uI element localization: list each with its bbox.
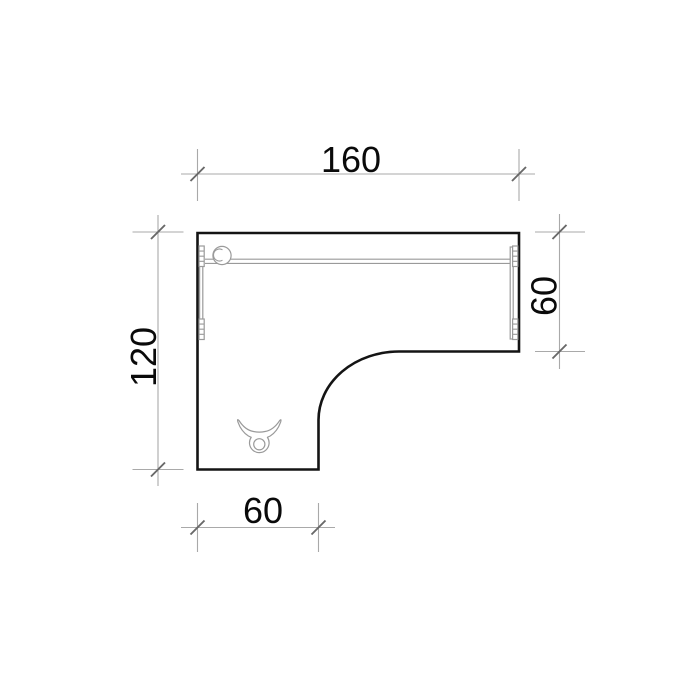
dimension-right-label: 60 (524, 276, 565, 316)
dimension-left-label: 120 (123, 327, 164, 387)
cable-grommet-icon (213, 246, 231, 264)
dimension-top: 160 (181, 139, 535, 201)
desk-plan-svg: 160 120 60 60 (0, 0, 700, 700)
dimension-bottom-label: 60 (243, 490, 283, 531)
dimension-bottom: 60 (181, 490, 335, 552)
dimension-top-label: 160 (321, 139, 381, 180)
dimension-right: 60 (524, 214, 586, 369)
desk-plan-drawing: 160 120 60 60 (0, 0, 700, 700)
leg-ring-inner (254, 439, 265, 450)
dimension-left: 120 (123, 215, 184, 486)
